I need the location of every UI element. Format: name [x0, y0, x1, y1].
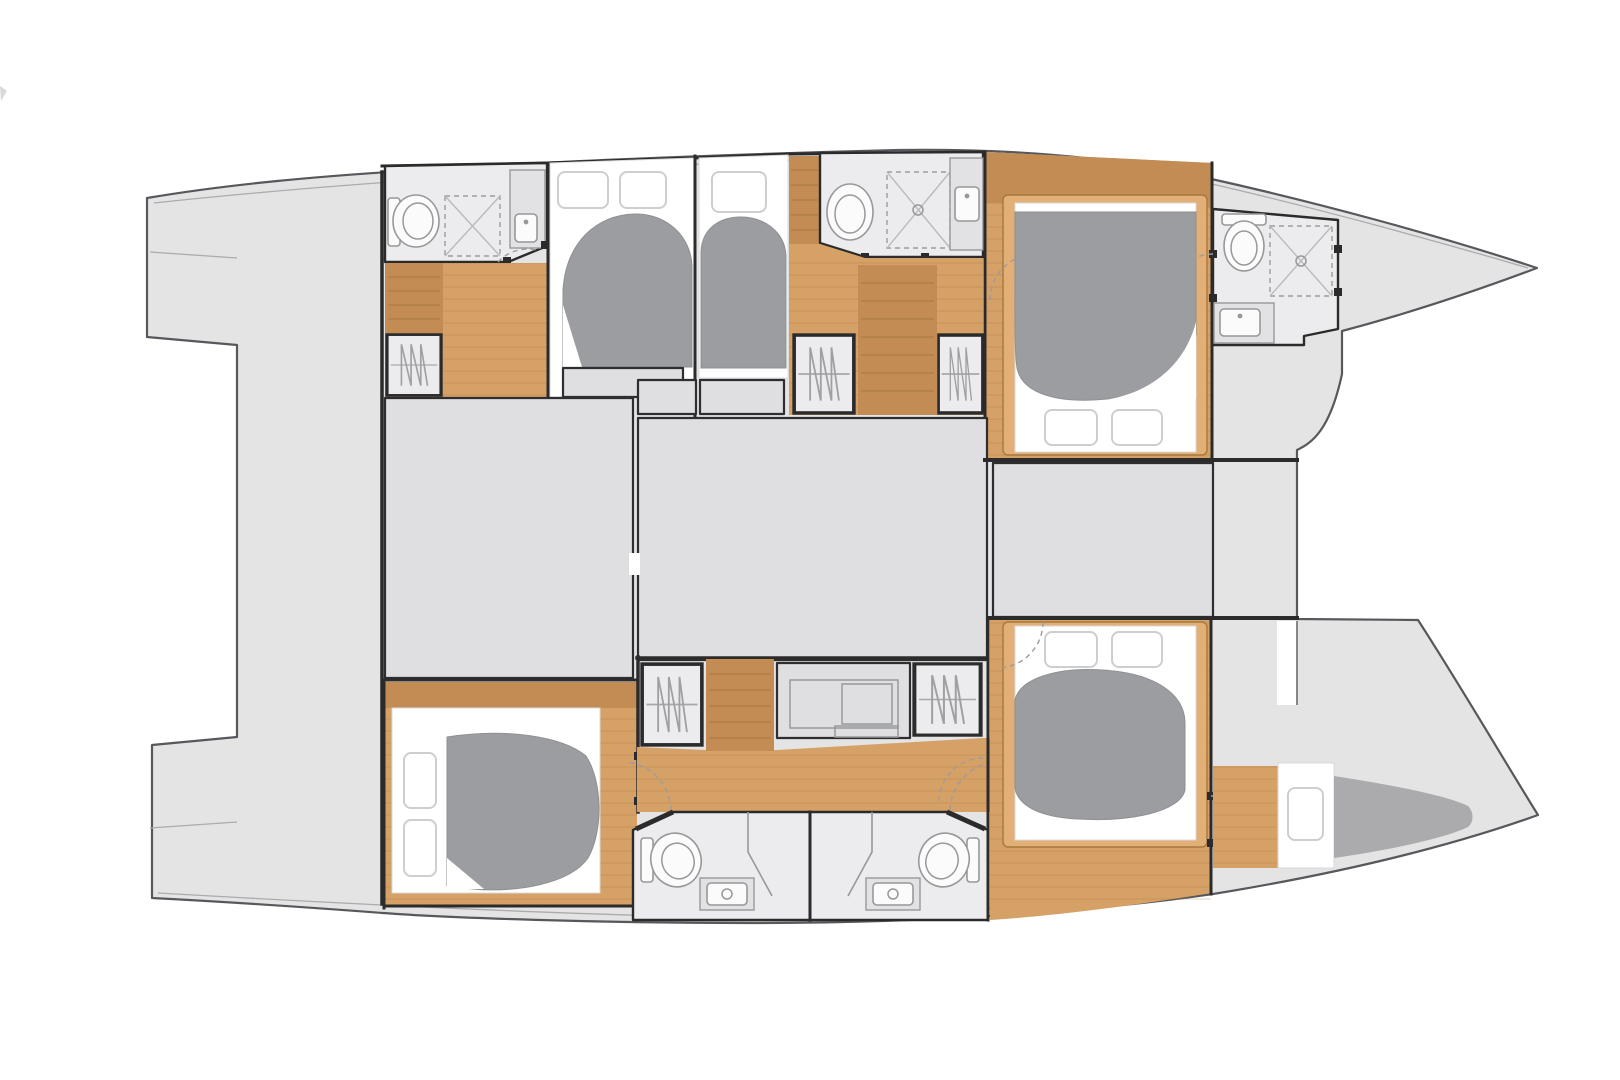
- saloon-block-port: [385, 398, 633, 678]
- washbasin-icon: [955, 187, 979, 221]
- washbasin-icon: [1220, 309, 1260, 336]
- saloon-door-gap: [629, 553, 640, 575]
- starboard-companionway: [706, 659, 774, 751]
- toilet-icon: [827, 184, 873, 240]
- washbasin-icon: [707, 883, 747, 905]
- pillow-icon: [712, 172, 766, 212]
- catamaran-floor-plan: [0, 0, 1620, 1080]
- wardrobe-icon-3: [939, 335, 983, 413]
- head-shelf: [385, 682, 637, 708]
- duvet: [447, 733, 599, 890]
- washbasin-icon: [873, 883, 913, 905]
- washbasin-icon: [515, 214, 537, 242]
- faucet-icon: [524, 220, 529, 225]
- bow-deck-gap: [1277, 621, 1297, 705]
- pillow-icon: [1112, 410, 1162, 445]
- floor-plan-stage: [0, 0, 1620, 1080]
- pillow-icon: [1045, 410, 1097, 445]
- pillow-icon: [404, 753, 436, 808]
- pillow-icon: [1288, 788, 1323, 840]
- pillow-icon: [620, 172, 666, 208]
- berth-base: [700, 380, 784, 414]
- port-aft-bathroom: [385, 163, 549, 265]
- pillow-icon: [1045, 632, 1097, 667]
- port-companionway: [858, 265, 937, 415]
- page-speck: [0, 86, 7, 101]
- faucet-icon: [1238, 314, 1243, 319]
- wardrobe-icon-4: [642, 664, 702, 745]
- faucet-icon: [965, 194, 970, 199]
- saloon-block-center: [638, 418, 987, 660]
- foredeck-block: [993, 463, 1213, 617]
- port-forward-cabin: [985, 152, 1213, 462]
- wardrobe-icon-1: [387, 335, 441, 396]
- wardrobe-icon-2: [794, 335, 854, 413]
- berth-base: [638, 380, 696, 414]
- vanity-desk: [777, 663, 910, 738]
- pillow-icon: [1112, 632, 1162, 667]
- pillow-icon: [404, 820, 436, 876]
- port-aft-cabin: [548, 156, 695, 416]
- duvet: [701, 217, 786, 368]
- wardrobe-icon-5: [914, 664, 980, 735]
- duvet: [1015, 670, 1185, 820]
- pillow-icon: [558, 172, 608, 208]
- toilet-icon: [1224, 221, 1264, 271]
